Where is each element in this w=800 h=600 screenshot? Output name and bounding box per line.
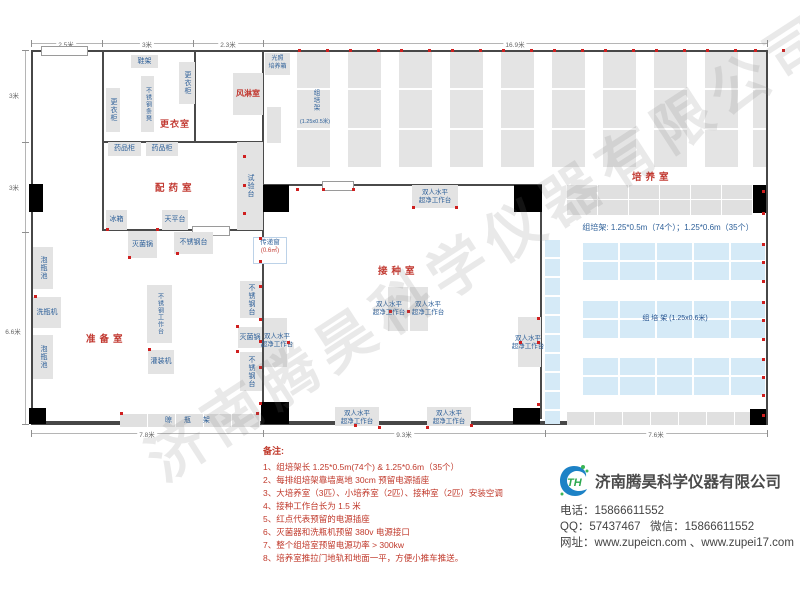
culture-rack: [603, 52, 636, 167]
wardrobe: 更衣柜: [179, 62, 195, 104]
stainless-table: 不锈钢台: [240, 352, 262, 391]
pillar: [261, 402, 289, 424]
door-top-left: [41, 46, 88, 56]
dim-line-left: [25, 50, 26, 425]
filling-machine: 灌装机: [148, 350, 174, 374]
note-item: 5、红点代表预留的电源插座: [263, 513, 503, 526]
culture-rack: [399, 52, 432, 167]
dim-tick: [545, 430, 546, 437]
culture-rack-bottom: [567, 412, 750, 425]
room-label-culture: 培养室: [632, 169, 673, 183]
dim-tick: [22, 142, 29, 143]
note-item: 3、大培养室（3匹）、小培养室（2匹）、接种室（2匹）安装空调: [263, 487, 503, 500]
dim-bottom-3: 7.6米: [646, 429, 666, 439]
dim-tick: [22, 424, 29, 425]
transfer-window-area: (0.6㎡): [254, 247, 286, 255]
culture-rack-blue-row: [583, 243, 765, 280]
notes-title: 备注:: [263, 444, 503, 457]
clean-bench-label: 双人水平超净工作台: [405, 189, 465, 204]
stainless-bench: 不锈钢条凳: [141, 76, 154, 132]
dim-tick: [767, 40, 768, 47]
note-item: 4、接种工作台长为 1.5 米: [263, 500, 503, 513]
incubator-box: [267, 107, 281, 143]
clean-bench-label: 双人水平超净工作台: [398, 301, 458, 316]
bottle-washer: 洗瓶机: [33, 297, 61, 328]
contact-phone: 电话：15866611552: [560, 502, 664, 518]
soak-pool: 泡瓶池: [33, 335, 53, 379]
clean-bench-label: 双人水平超净工作台: [327, 410, 387, 425]
sterilizer: 灭菌锅: [128, 231, 157, 258]
contact-qq-wechat: QQ：57437467 微信：15866611552: [560, 518, 754, 534]
door-inoculation: [322, 181, 354, 191]
dim-tick: [263, 430, 264, 437]
wall-v-culture: [540, 184, 542, 419]
culture-rack: [705, 52, 738, 167]
pillar: [29, 408, 46, 424]
floor-plan-canvas: 2.5米 3米 2.3米 16.9米 3米 3米 6.6米 7.8米 9.3米 …: [0, 0, 800, 600]
dim-bottom-2: 9.3米: [394, 429, 414, 439]
dim-left-3: 6.6米: [3, 326, 23, 336]
medicine-cabinet: 药品柜: [146, 142, 178, 156]
dim-tick: [22, 50, 29, 51]
medicine-cabinet: 药品柜: [108, 142, 141, 156]
culture-rack: [501, 52, 534, 167]
pillar: [513, 408, 540, 424]
clean-bench-label: 双人水平超净工作台: [247, 333, 307, 348]
dim-tick: [263, 40, 264, 47]
bottle-drying-rack: 晾 瓶 架: [120, 414, 260, 427]
culture-rack-horizontal: [567, 185, 753, 215]
pillar: [29, 184, 43, 212]
culture-rack: [753, 52, 766, 167]
room-label-prep: 准备室: [86, 331, 127, 345]
dim-bottom-1: 7.8米: [137, 429, 157, 439]
culture-rack: [450, 52, 483, 167]
dim-tick: [767, 430, 768, 437]
note-item: 6、灭菌器和洗瓶机预留 380v 电源接口: [263, 526, 503, 539]
company-name: 济南腾昊科学仪器有限公司: [595, 470, 781, 492]
dim-top-3: 2.3米: [218, 39, 238, 49]
culture-rack-blue-row: [583, 358, 765, 395]
pillar: [261, 185, 289, 212]
shoe-rack: 鞋架: [131, 55, 158, 68]
dim-tick: [22, 232, 29, 233]
fridge: 冰箱: [106, 210, 127, 230]
pillar: [750, 409, 766, 425]
note-item: 8、培养室推拉门地轨和地面一平，方便小推车推送。: [263, 552, 503, 565]
dim-left-2: 3米: [7, 182, 21, 192]
soak-pool: 泡瓶池: [33, 247, 53, 289]
room-label-changing: 更衣室: [160, 117, 190, 130]
culture-rack: [654, 52, 687, 167]
rack-caption: 组培架: 1.25*0.5m（74个）；1.25*0.6m（35个）: [568, 224, 768, 232]
room-label-inoculation: 接种室: [378, 263, 419, 277]
svg-text:TH: TH: [567, 477, 583, 489]
dim-tick: [193, 40, 194, 47]
clean-bench-label: 双人水平超净工作台: [419, 410, 479, 425]
dim-top-4: 16.9米: [503, 39, 526, 49]
company-logo: TH: [556, 462, 592, 505]
stainless-workbench: 不锈钢工作台: [147, 285, 172, 343]
notes-block: 备注: 1、组培架长 1.25*0.5m(74个) & 1.25*0.6m（35…: [263, 444, 503, 565]
dim-tick: [31, 430, 32, 437]
dim-left-1: 3米: [7, 90, 21, 100]
balance-table: 天平台: [162, 210, 188, 230]
wardrobe: 更衣柜: [106, 88, 120, 132]
culture-rack-label: 组培架 (1.25x0.5米): [299, 85, 331, 126]
culture-rack-blue-vertical: [545, 240, 560, 424]
pillar: [514, 185, 542, 212]
culture-rack: [552, 52, 585, 167]
note-item: 7、整个组培室预留电源功率 > 300kw: [263, 539, 503, 552]
dim-top-2: 3米: [140, 39, 154, 49]
room-label-air-shower: 风淋室: [236, 90, 260, 98]
stainless-table: 不锈钢台: [174, 232, 213, 254]
note-item: 2、每排组培架靠墙离地 30cm 预留电源插座: [263, 474, 503, 487]
note-item: 1、组培架长 1.25*0.5m(74个) & 1.25*0.6m（35个）: [263, 461, 503, 474]
contact-website: 网址：www.zupeicn.com 、www.zupei17.com: [560, 534, 794, 550]
culture-rack-blue-label: 组 培 架 (1.25x0.6米): [600, 313, 750, 323]
culture-rack: [348, 52, 381, 167]
dim-tick: [102, 40, 103, 47]
dim-tick: [31, 40, 32, 47]
light-incubator: 光照培养箱: [265, 53, 290, 75]
wall-h-inoculation-top: [262, 184, 542, 186]
air-shower-room: 风淋室: [233, 73, 263, 115]
room-label-dispensing: 配药室: [155, 180, 196, 194]
test-bench: 试验台: [237, 142, 263, 230]
